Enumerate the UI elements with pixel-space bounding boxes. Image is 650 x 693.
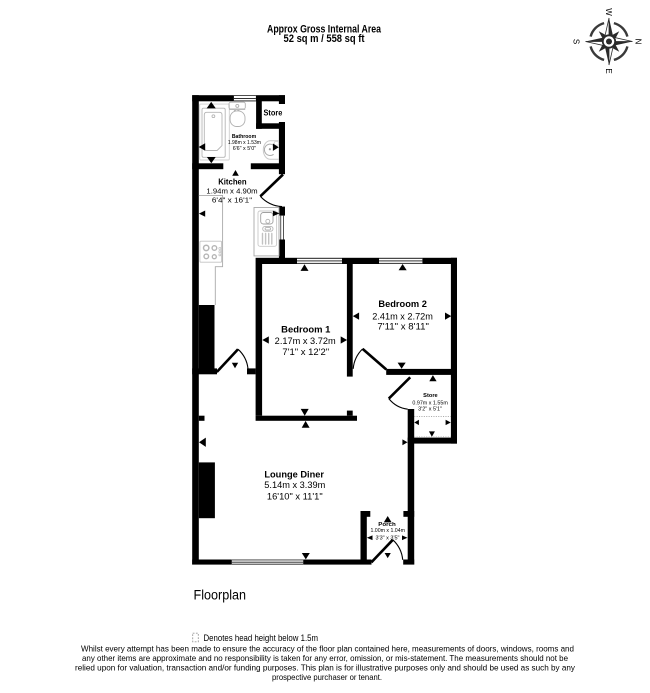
svg-text:2.17m x 3.72m: 2.17m x 3.72m: [275, 336, 336, 346]
svg-text:relied upon for valuation, tra: relied upon for valuation, transaction a…: [75, 662, 576, 672]
svg-text:Bedroom 1: Bedroom 1: [281, 325, 331, 336]
svg-text:Whilst every attempt has been: Whilst every attempt has been made to en…: [81, 643, 574, 653]
svg-text:6'6" x 5'0": 6'6" x 5'0": [233, 146, 256, 152]
svg-text:Kitchen: Kitchen: [218, 177, 247, 186]
svg-text:Floorplan: Floorplan: [194, 587, 247, 602]
svg-text:Store: Store: [423, 393, 438, 399]
svg-text:Denotes head height below 1.5m: Denotes head height below 1.5m: [204, 633, 319, 643]
svg-text:2.41m x 2.72m: 2.41m x 2.72m: [372, 311, 433, 321]
svg-text:16'10" x 11'1": 16'10" x 11'1": [267, 492, 323, 502]
svg-text:1.94m x 4.90m: 1.94m x 4.90m: [206, 186, 257, 195]
svg-text:1.00m x 1.04m: 1.00m x 1.04m: [370, 528, 405, 534]
svg-text:any other items are approximat: any other items are approximate and no r…: [82, 653, 568, 663]
svg-text:Bedroom 2: Bedroom 2: [378, 299, 427, 310]
svg-text:Porch: Porch: [378, 522, 396, 528]
svg-text:Lounge Diner: Lounge Diner: [264, 470, 324, 481]
svg-text:6'4" x 16'1": 6'4" x 16'1": [212, 195, 252, 204]
svg-text:3'2" x 5'1": 3'2" x 5'1": [418, 406, 442, 412]
svg-text:N: N: [634, 39, 643, 45]
svg-text:52 sq m / 558 sq ft: 52 sq m / 558 sq ft: [284, 33, 365, 45]
svg-text:W: W: [604, 8, 613, 16]
svg-text:5.14m x 3.39m: 5.14m x 3.39m: [264, 480, 325, 490]
svg-text:Store: Store: [264, 109, 283, 118]
svg-text:3'3" x 3'5": 3'3" x 3'5": [376, 535, 400, 541]
svg-text:E: E: [604, 68, 613, 73]
svg-text:S: S: [572, 39, 581, 44]
svg-text:7'11" x 8'11": 7'11" x 8'11": [377, 321, 429, 331]
svg-text:7'1" x 12'2": 7'1" x 12'2": [282, 347, 329, 357]
svg-text:prospective purchaser or tenan: prospective purchaser or tenant.: [272, 672, 382, 682]
